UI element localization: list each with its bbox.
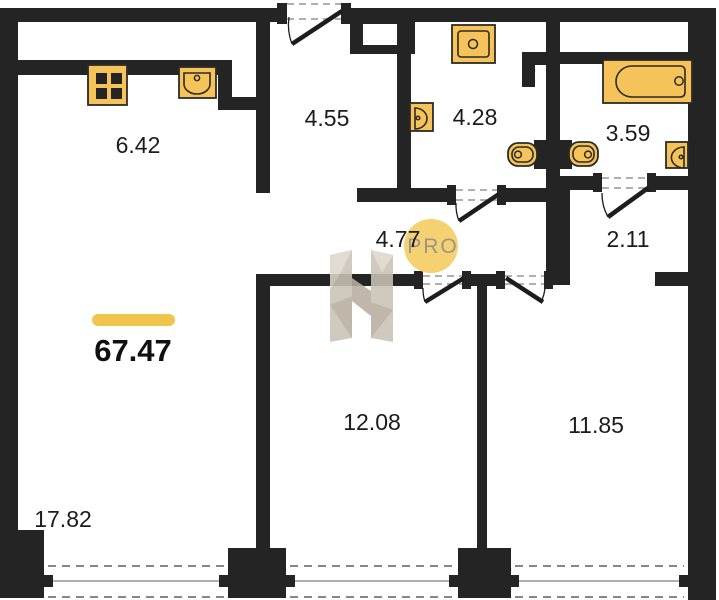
wall-segment: [506, 188, 546, 202]
total-area-accent-bar: [92, 314, 175, 326]
window: [286, 566, 458, 597]
wall-pillar: [458, 548, 511, 598]
door-jamb: [414, 271, 423, 289]
wall-segment: [0, 8, 285, 22]
window: [44, 566, 228, 597]
toilet: [508, 140, 547, 169]
door-bathroom: [602, 178, 648, 217]
window-end-tick: [510, 575, 519, 587]
room-label-bathroom: 3.59: [606, 120, 651, 146]
window-end-tick: [219, 575, 228, 587]
door-jamb: [447, 185, 456, 205]
wall-segment: [397, 22, 411, 202]
door-jamb: [341, 3, 351, 24]
logo-watermark: [330, 250, 393, 342]
window-end-tick: [449, 575, 458, 587]
room-label-room-1: 12.08: [343, 409, 401, 435]
room-label-kitchen: 6.42: [116, 132, 161, 158]
window: [510, 566, 688, 597]
room-label-entry-hall: 4.55: [305, 105, 350, 131]
room-label-room-2: 11.85: [568, 412, 624, 438]
wall-segment: [256, 286, 270, 548]
floorplan: PRO 6.42 4.55 4.28 3.59 4.77 2.11 12.08 …: [0, 0, 719, 600]
wall-segment: [357, 188, 449, 202]
door-jamb: [544, 271, 553, 289]
wall-niche: [363, 24, 397, 45]
door-jamb: [277, 3, 287, 24]
kitchen-sink: [179, 67, 216, 98]
door-jamb: [593, 173, 602, 192]
wall-segment: [256, 22, 270, 193]
total-area-value: 67.47: [94, 333, 172, 368]
door-jamb: [496, 271, 505, 289]
balcony-door: [287, 4, 342, 44]
toilet: [559, 140, 598, 169]
wall-pillar: [228, 548, 286, 598]
door-room-1: [423, 276, 464, 302]
total-area: 67.47: [92, 314, 175, 368]
wall-segment: [471, 274, 496, 286]
room-label-shower-room: 4.28: [453, 104, 498, 130]
stove: [88, 65, 127, 105]
room-label-corridor: 4.77: [376, 226, 421, 252]
floorplan-drawing: PRO 6.42 4.55 4.28 3.59 4.77 2.11 12.08 …: [0, 0, 719, 600]
shower-tray: [452, 25, 495, 63]
door-room-2: [505, 276, 545, 302]
windows: [44, 566, 688, 597]
washbasin: [666, 142, 688, 168]
window-end-tick: [44, 575, 53, 587]
wall-segment: [0, 8, 18, 598]
room-label-living-room: 17.82: [34, 506, 92, 532]
wall-segment: [546, 8, 560, 190]
wall-segment: [477, 286, 487, 548]
window-end-tick: [286, 575, 295, 587]
room-label-walk-in: 2.11: [606, 226, 649, 252]
wall-segment: [655, 272, 688, 286]
wall-pillar: [0, 530, 44, 598]
bathtub: [603, 60, 692, 103]
washbasin: [410, 103, 433, 131]
wall-segment: [522, 52, 535, 87]
door-shower-room: [456, 190, 499, 221]
window-end-tick: [679, 575, 688, 587]
